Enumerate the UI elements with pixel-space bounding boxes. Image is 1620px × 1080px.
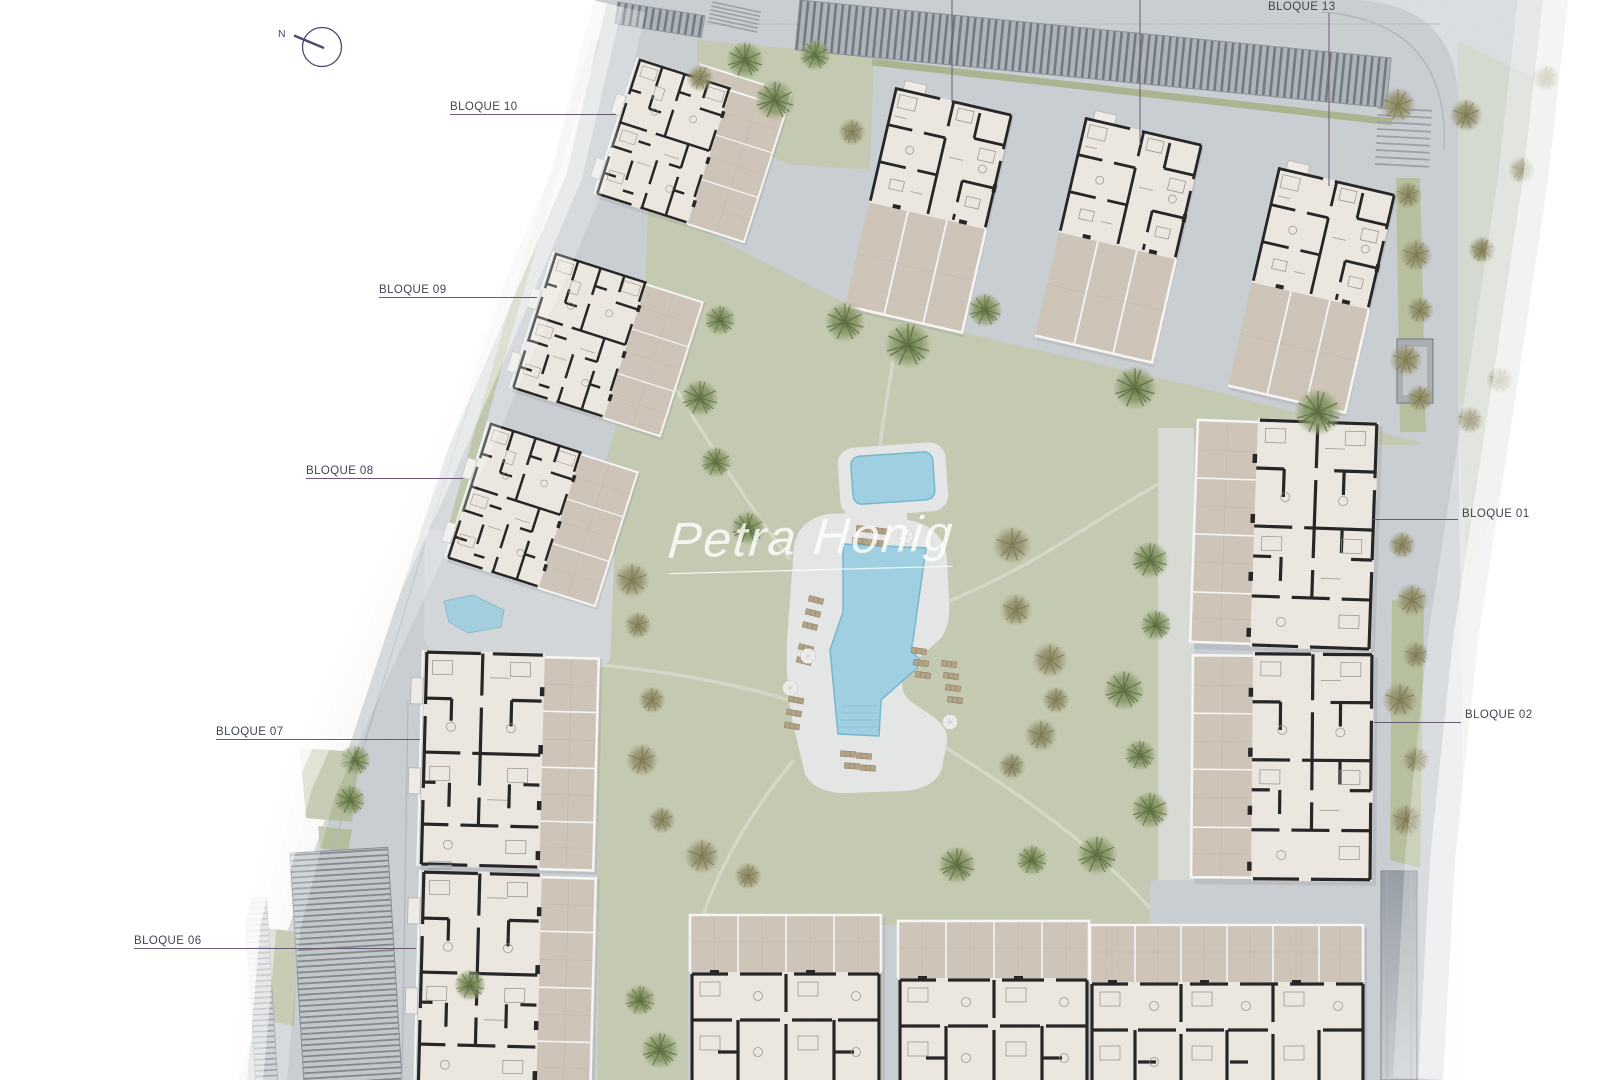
svg-text:BLOQUE 07: BLOQUE 07	[216, 726, 284, 738]
svg-text:BLOQUE 10: BLOQUE 10	[450, 101, 518, 113]
svg-text:BLOQUE 01: BLOQUE 01	[1462, 508, 1530, 520]
svg-text:BLOQUE 13: BLOQUE 13	[1268, 1, 1336, 13]
svg-text:N: N	[278, 28, 286, 40]
svg-text:BLOQUE 02: BLOQUE 02	[1465, 709, 1533, 721]
svg-text:Petra Honig: Petra Honig	[666, 505, 956, 568]
svg-text:BLOQUE 09: BLOQUE 09	[379, 284, 447, 296]
svg-text:BLOQUE 08: BLOQUE 08	[306, 465, 374, 477]
svg-text:BLOQUE 06: BLOQUE 06	[134, 935, 202, 947]
